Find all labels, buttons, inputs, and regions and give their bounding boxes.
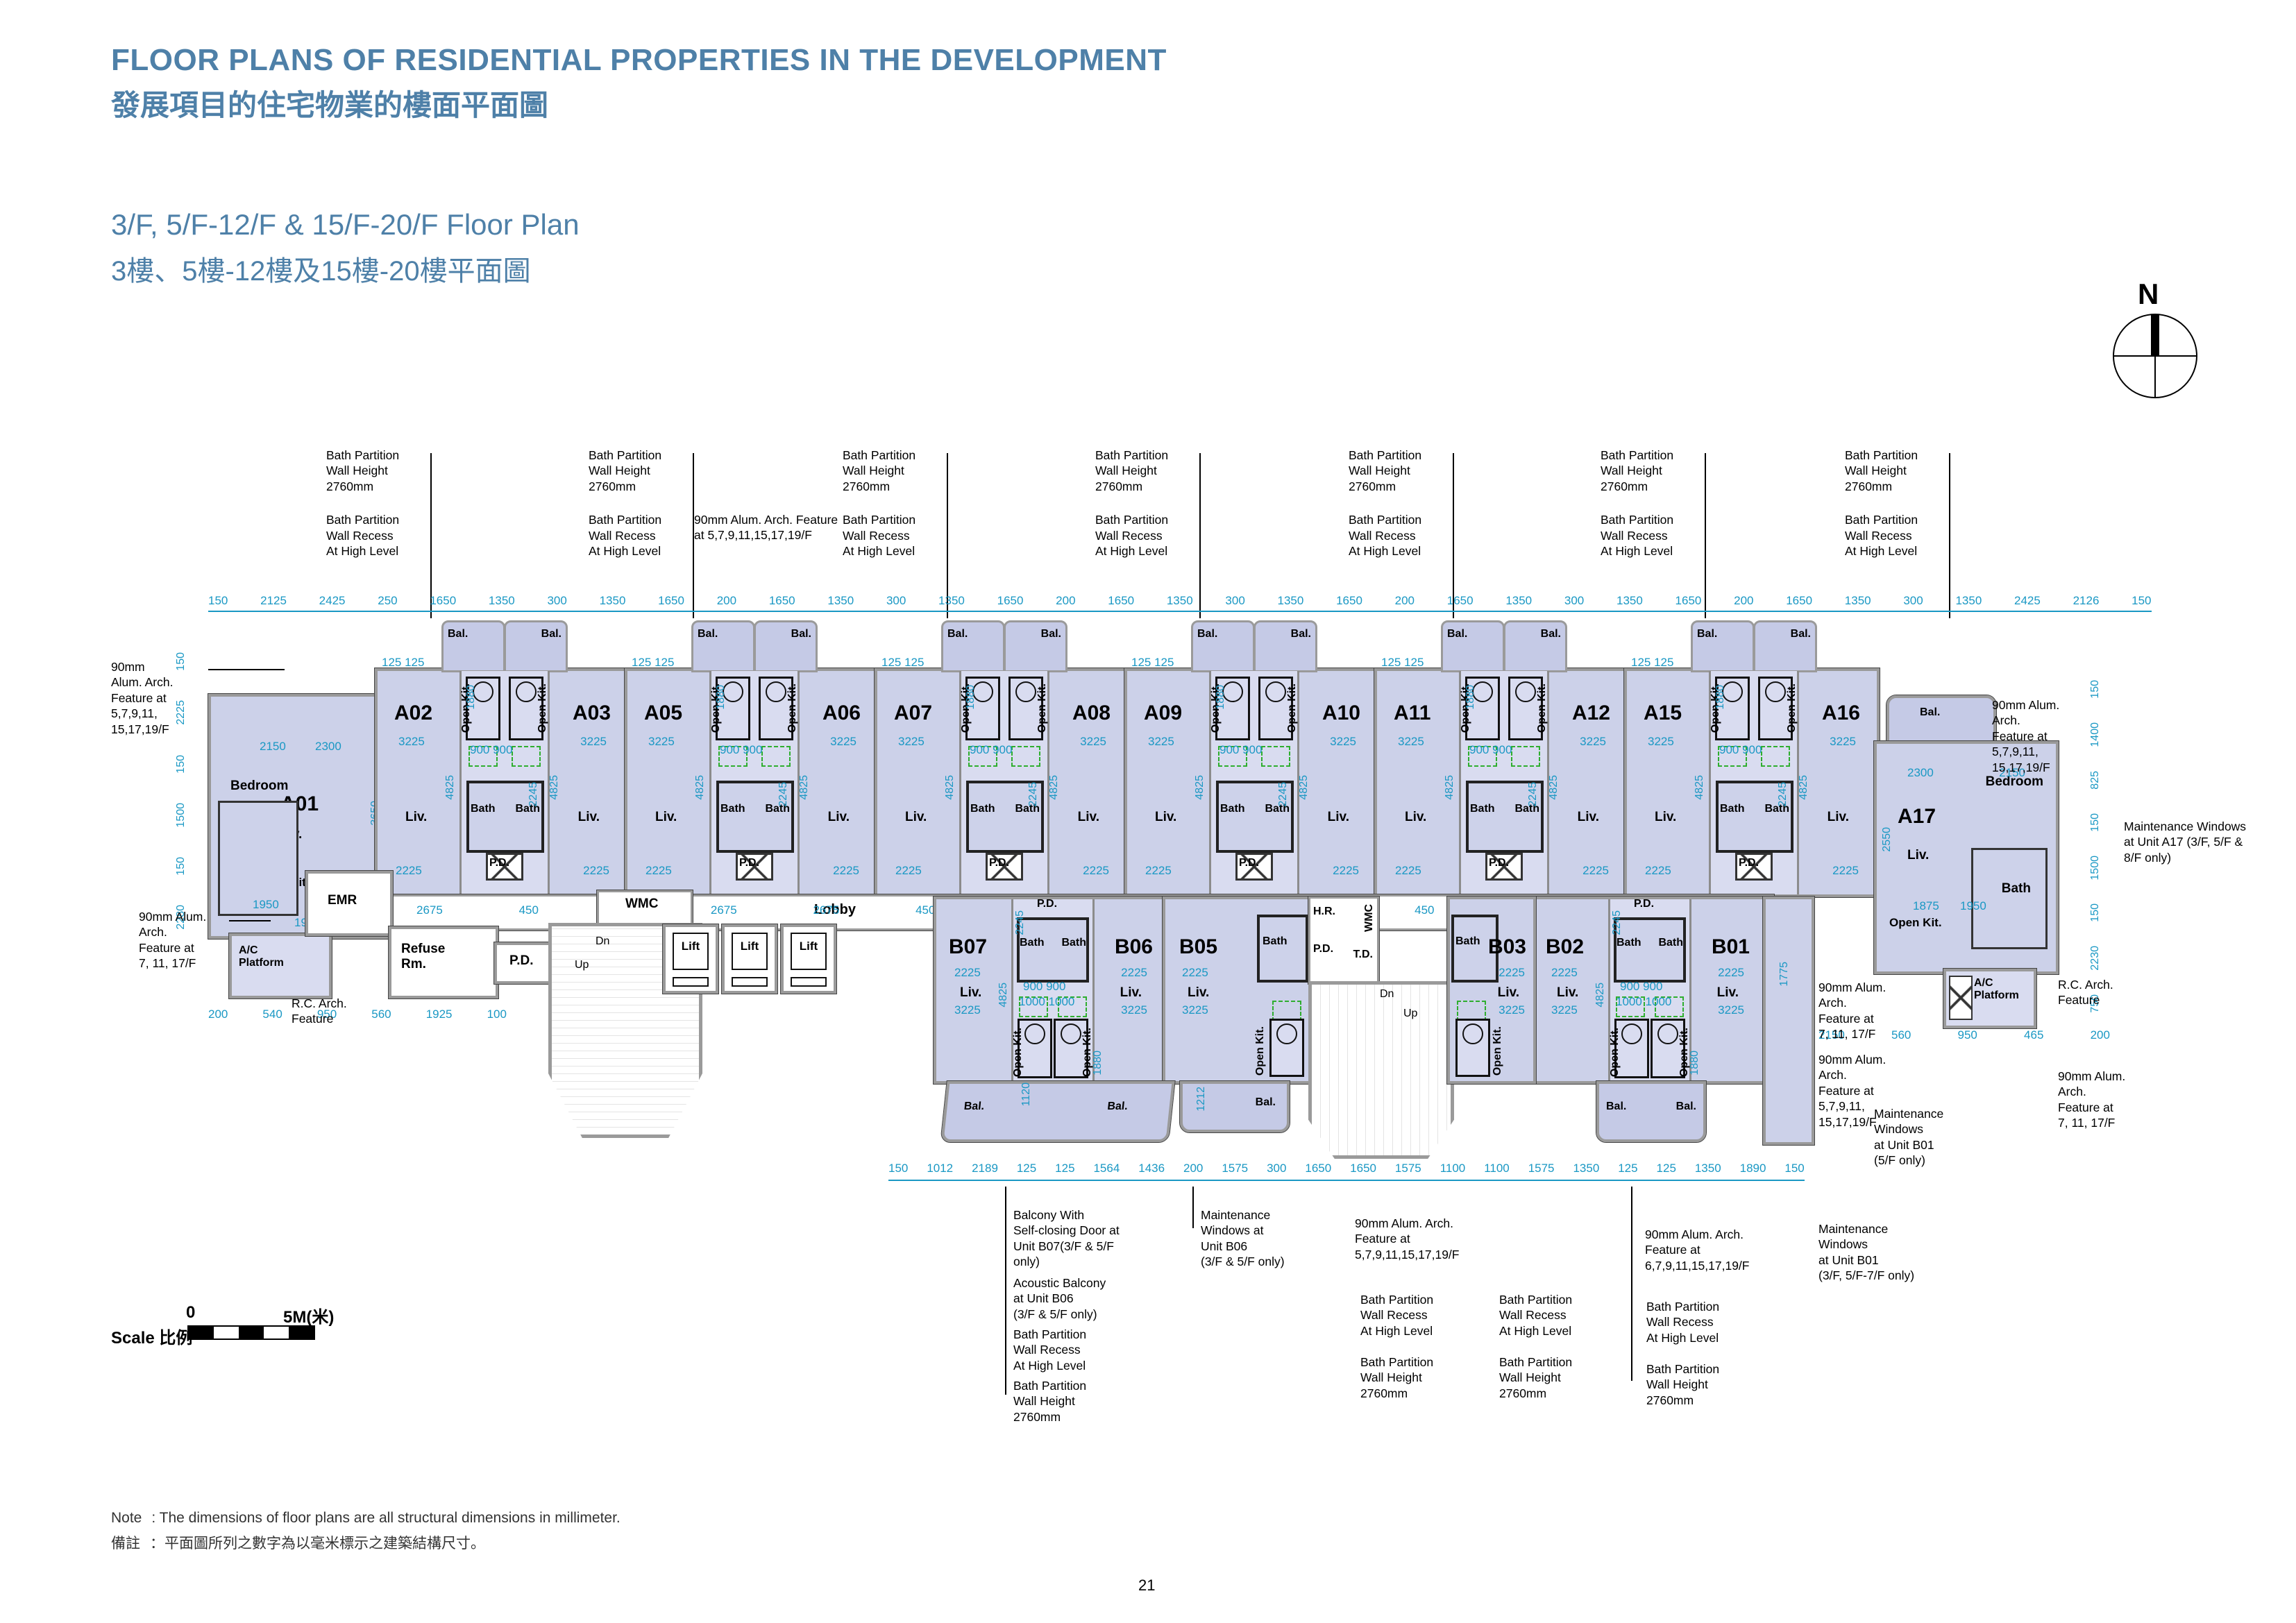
room-label-liv: Liv.	[1120, 985, 1142, 1001]
balcony: Bal.	[504, 620, 568, 672]
dimension-value: 150	[888, 1162, 908, 1175]
room-label-pd: P.D.	[739, 857, 759, 869]
room-label-ac-platform: A/C Platform	[239, 944, 284, 969]
dimension-value: 1875	[1913, 899, 1939, 913]
left-dimension-column: 150222515015001502280	[175, 652, 187, 930]
room-label-pd: P.D.	[509, 953, 534, 969]
dimension-value: 3225	[830, 735, 856, 749]
scale-start: 0	[186, 1303, 195, 1323]
room-label-liv: Liv.	[1827, 810, 1849, 825]
room-label-pd: P.D.	[1037, 898, 1057, 910]
ac-unit-icon	[1949, 976, 1973, 1020]
callout-bath-height: Bath Partition Wall Height 2760mm	[1601, 448, 1739, 494]
callout-bath-recess: Bath Partition Wall Recess At High Level	[1349, 512, 1487, 559]
dimension-value: 200	[717, 594, 736, 608]
stove-icon	[1462, 1023, 1483, 1044]
room-label-liv: Liv.	[828, 810, 850, 825]
room-label-bal: Bal.	[963, 1101, 985, 1113]
callout-maint-a17: Maintenance Windows at Unit A17 (3/F, 5/…	[2124, 819, 2290, 865]
dimension-value: 2245	[1277, 782, 1290, 807]
room-label-open-kit: Open Kit.	[786, 683, 799, 733]
dimension-value: 1400	[2089, 722, 2102, 747]
dimension-value: 150	[208, 594, 228, 608]
dimension-value: 1350	[938, 594, 965, 608]
unit-label: A12	[1572, 702, 1610, 725]
room-label-bath: Bath	[2002, 881, 2031, 897]
top-callout-column: Bath Partition Wall Height 2760mm Bath P…	[1601, 448, 1739, 559]
dimension-value: 300	[1564, 594, 1584, 608]
room-label-bal: Bal.	[947, 628, 968, 640]
dimension-value: 900 900	[970, 743, 1012, 757]
dimension-value: 3225	[1648, 735, 1674, 749]
callout-left-alum-5: 90mm Alum. Arch. Feature at 5,7,9,11, 15…	[111, 659, 173, 737]
dimension-value: 1880	[1464, 685, 1477, 710]
room-label-pd: P.D.	[1313, 943, 1333, 955]
room-label-pd: P.D.	[489, 857, 509, 869]
dimension-value: 200	[1734, 594, 1753, 608]
balcony: Bal.	[1004, 620, 1067, 672]
dimension-value: 1650	[1675, 594, 1702, 608]
dimension-value: 125 125	[1131, 656, 1174, 670]
dimension-value: 2425	[2014, 594, 2041, 608]
dimension-value: 1564	[1093, 1162, 1120, 1175]
dimension-value: 4825	[1594, 983, 1607, 1008]
b05-bath-walls: Bath	[1257, 915, 1308, 983]
room-label-liv: Liv.	[1188, 985, 1209, 1001]
scale-bar-segments	[187, 1325, 315, 1340]
emr-room: EMR	[305, 871, 393, 936]
top-callout-column: Bath Partition Wall Height 2760mm Bath P…	[1845, 448, 1984, 559]
room-label-liv: Liv.	[578, 810, 600, 825]
dimension-value: 1575	[1528, 1162, 1555, 1175]
room-label-refuse: Refuse Rm.	[401, 942, 445, 972]
unit-pair: Bal. Bal. Open Kit. Open Kit. 900 900 Ba…	[1624, 668, 1880, 897]
callout-bath-height: Bath Partition Wall Height 2760mm	[1360, 1354, 1485, 1401]
services-column: H.R. WMC P.D. T.D.	[1308, 897, 1379, 984]
unit-label: A10	[1322, 702, 1360, 725]
unit-a17-ac-platform: A/C Platform	[1943, 969, 2036, 1028]
room-label-pd: P.D.	[1739, 857, 1759, 869]
dimension-value: 150	[2089, 813, 2102, 832]
leader-line	[229, 920, 271, 921]
dimension-value: 4825	[1694, 775, 1706, 800]
north-label: N	[2138, 278, 2159, 311]
dimension-value: 2225	[1499, 966, 1525, 980]
dimension-value: 900 900	[1219, 743, 1262, 757]
note-en-label: Note	[111, 1510, 142, 1527]
dimension-value: 2225	[583, 864, 609, 878]
room-label-wmc: WMC	[1363, 904, 1376, 932]
bottom-dimension-line	[888, 1180, 1805, 1181]
unit-a01-ac-platform: A/C Platform	[229, 933, 332, 999]
room-label-open-kit: Open Kit.	[1786, 683, 1798, 733]
dimension-value: 450	[519, 903, 539, 917]
room-label-bath: Bath	[1263, 935, 1288, 948]
room-label-bath: Bath	[1617, 937, 1641, 949]
unit-label: A05	[644, 702, 682, 725]
room-label-ac-platform: A/C Platform	[1974, 977, 2019, 1002]
stove-icon	[1015, 681, 1036, 702]
dimension-value: 1500	[2089, 856, 2102, 881]
unit-label: A02	[394, 702, 432, 725]
dimension-value: 125	[1017, 1162, 1036, 1175]
stove-icon	[516, 681, 537, 702]
dimension-value: 200	[1056, 594, 1075, 608]
dimension-value: 1880	[715, 685, 727, 710]
balcony: Bal.	[754, 620, 818, 672]
unit-label-a17: A17	[1898, 805, 1936, 829]
balcony-b02-b01: Bal. Bal.	[1596, 1081, 1706, 1142]
callout-right-alum-5: 90mm Alum. Arch. Feature at 5,7,9,11, 15…	[1992, 697, 2059, 775]
dimension-value: 3225	[954, 1003, 981, 1017]
dimension-value: 2225	[1083, 864, 1109, 878]
dimension-value: 900 900	[1023, 980, 1065, 994]
dimension-value: 125	[1618, 1162, 1637, 1175]
dimension-value: 4825	[1194, 775, 1206, 800]
room-label-wmc: WMC	[625, 897, 658, 912]
callout-bath-height: Bath Partition Wall Height 2760mm	[1646, 1361, 1771, 1408]
kitchen-zone-dashed	[512, 746, 541, 767]
callout-alum-bottom-6: 90mm Alum. Arch. Feature at 6,7,9,11,15,…	[1645, 1227, 1798, 1273]
callout-right-alum-7: 90mm Alum. Arch. Feature at 7, 11, 17/F	[2058, 1069, 2125, 1131]
dimension-value: 2245	[1611, 910, 1623, 935]
dimension-value: 3225	[898, 735, 925, 749]
dimension-value: 200	[2091, 1028, 2110, 1042]
room-label-open-kit: Open Kit.	[1492, 1026, 1504, 1076]
dimension-value: 150	[1784, 1162, 1804, 1175]
dimension-value: 1650	[1350, 1162, 1376, 1175]
dimension-value: 125 125	[1381, 656, 1424, 670]
dimension-value: 3225	[580, 735, 607, 749]
callout-bath-recess: Bath Partition Wall Recess At High Level	[326, 512, 465, 559]
callout-maint-b01-37: Maintenance Windows at Unit B01 (3/F, 5/…	[1818, 1221, 1914, 1284]
dimension-value: 1575	[1395, 1162, 1421, 1175]
room-label-bal: Bal.	[1041, 628, 1061, 640]
stove-icon	[1515, 681, 1536, 702]
dimension-value: 1650	[1447, 594, 1474, 608]
dimension-value: 950	[1958, 1028, 1977, 1042]
dimension-value: 900 900	[1469, 743, 1512, 757]
note-zh-text: ：平面圖所列之數字為以毫米標示之建築結構尺寸。	[150, 1532, 485, 1553]
dimension-value: 2245	[1027, 782, 1040, 807]
dimension-value: 2675	[416, 903, 443, 917]
unit-label: A09	[1144, 702, 1182, 725]
callout-bath-height: Bath Partition Wall Height 2760mm	[1013, 1378, 1173, 1425]
dimension-value: 300	[886, 594, 906, 608]
leader-line	[208, 669, 285, 670]
room-label-bal: Bal.	[1697, 628, 1717, 640]
dimension-value: 200	[1395, 594, 1415, 608]
room-label-bath: Bath	[471, 803, 496, 815]
room-label-open-kit: Open Kit.	[537, 683, 549, 733]
top-callout-column: Bath Partition Wall Height 2760mm Bath P…	[843, 448, 981, 559]
dimension-value: 150	[175, 857, 187, 876]
dimension-value: 1650	[430, 594, 456, 608]
unit-label: A16	[1822, 702, 1860, 725]
dimension-value: 250	[378, 594, 397, 608]
callout-alum-mid-top: 90mm Alum. Arch. Feature at 5,7,9,11,15,…	[694, 512, 854, 543]
dimension-value: 2225	[1832, 864, 1859, 878]
top-dimension-row: 1502125242525016501350300135016502001650…	[208, 594, 2152, 608]
lift-door-icon	[673, 977, 709, 987]
room-label-open-kit: Open Kit.	[1286, 683, 1299, 733]
callout-bath-recess: Bath Partition Wall Recess At High Level	[1013, 1327, 1173, 1373]
room-label-open-kit: Open Kit.	[1012, 1028, 1024, 1077]
room-label-td: T.D.	[1353, 949, 1373, 961]
room-label-open-kit: Open Kit.	[1536, 683, 1548, 733]
dimension-value: 1650	[1305, 1162, 1331, 1175]
dimension-value: 3225	[1121, 1003, 1147, 1017]
page-subtitle-zh: 3樓、5樓-12樓及15樓-20樓平面圖	[111, 248, 531, 289]
callout-b01-alum-7: 90mm Alum. Arch. Feature at 7, 11, 17/F	[1818, 980, 1886, 1042]
kitchen-zone-dashed	[1761, 746, 1790, 767]
dimension-value: 1650	[1108, 594, 1134, 608]
callout-bath-recess: Bath Partition Wall Recess At High Level	[1601, 512, 1739, 559]
dimension-value: 1100	[1484, 1162, 1510, 1175]
room-label-bal: Bal.	[1920, 706, 1940, 719]
dimension-value: 3225	[1080, 735, 1106, 749]
dimension-value: 1950	[253, 898, 279, 912]
dimension-value: 3225	[1551, 1003, 1578, 1017]
room-label-pd: P.D.	[1489, 857, 1509, 869]
room-label-bal: Bal.	[1256, 1096, 1276, 1109]
room-label-liv: Liv.	[1155, 810, 1176, 825]
room-label-liv: Liv.	[1578, 810, 1599, 825]
callout-maint-b01-5: Maintenance Windows at Unit B01 (5/F onl…	[1874, 1106, 1943, 1169]
dimension-value: 2225	[1551, 966, 1578, 980]
room-label-emr: EMR	[328, 893, 357, 908]
balcony-b07-b06: Bal. Bal.	[940, 1081, 1174, 1142]
note-en: Note : The dimensions of floor plans are…	[111, 1510, 621, 1527]
dimension-value: 2245	[777, 782, 790, 807]
dimension-value: 2245	[1527, 782, 1539, 807]
dimension-value: 2225	[1182, 966, 1208, 980]
dimension-value: 1350	[1167, 594, 1193, 608]
dimension-value: 1350	[1955, 594, 1982, 608]
unit-label: B06	[1115, 935, 1153, 959]
dimension-value: 125 125	[382, 656, 424, 670]
callout-balcony-b07: Balcony With Self-closing Door at Unit B…	[1013, 1207, 1173, 1270]
page-number: 21	[1138, 1577, 1155, 1595]
note-zh: 備註 ：平面圖所列之數字為以毫米標示之建築結構尺寸。	[111, 1532, 485, 1553]
dimension-value: 1650	[997, 594, 1024, 608]
stair-label-up: Up	[575, 959, 589, 971]
callout-bath-height: Bath Partition Wall Height 2760mm	[1095, 448, 1234, 494]
dimension-value: 540	[262, 1008, 282, 1021]
unit-label: A07	[894, 702, 932, 725]
dimension-value: 1350	[1505, 594, 1532, 608]
balcony: Bal.	[691, 620, 755, 672]
north-arrow: N	[2110, 283, 2200, 422]
room-label-bal: Bal.	[698, 628, 718, 640]
dimension-value: 2225	[645, 864, 672, 878]
balcony: Bal.	[1441, 620, 1505, 672]
room-label-liv: Liv.	[1498, 985, 1519, 1001]
dimension-value: 1925	[426, 1008, 453, 1021]
callout-rc-feature-right: R.C. Arch. Feature	[2058, 977, 2113, 1008]
callout-rc-feature-left: R.C. Arch. Feature	[292, 996, 347, 1027]
balcony: Bal.	[1753, 620, 1817, 672]
dimension-value: 4825	[444, 775, 457, 800]
dimension-value: 560	[1891, 1028, 1911, 1042]
dimension-value: 150	[2089, 680, 2102, 699]
callout-maint-b06: Maintenance Windows at Unit B06 (3/F & 5…	[1201, 1207, 1319, 1270]
lift-shaft: Lift	[722, 924, 777, 994]
dimension-value: 1880	[1714, 685, 1727, 710]
page-title-zh: 發展項目的住宅物業的樓面平面圖	[111, 82, 548, 124]
dimension-value: 4825	[1798, 775, 1810, 800]
callout-bath-height: Bath Partition Wall Height 2760mm	[843, 448, 981, 494]
dimension-value: 825	[2089, 771, 2102, 790]
room-label-bal: Bal.	[1606, 1101, 1626, 1113]
room-label-hr: H.R.	[1313, 906, 1335, 918]
stove-icon	[1061, 1023, 1081, 1044]
dimension-value: 3225	[1580, 735, 1606, 749]
callout-bath-height: Bath Partition Wall Height 2760mm	[1349, 448, 1487, 494]
bottom-dimension-row: 1501012218912512515641436200157530016501…	[888, 1162, 1805, 1175]
room-label-bal: Bal.	[1106, 1101, 1128, 1113]
dimension-value: 3225	[1398, 735, 1424, 749]
dimension-value: 1890	[1740, 1162, 1766, 1175]
stair-label-dn: Dn	[1380, 988, 1394, 1001]
dimension-value: 1880	[1215, 685, 1227, 710]
stove-icon	[1276, 1023, 1297, 1044]
balcony: Bal.	[1253, 620, 1317, 672]
room-label-bal: Bal.	[1541, 628, 1561, 640]
dimension-value: 125 125	[881, 656, 924, 670]
dimension-value: 200	[208, 1008, 228, 1021]
room-label-bath: Bath	[720, 803, 745, 815]
unit-b05: B05 2225 Liv. 3225 Bath Open Kit.	[1163, 897, 1314, 1084]
dimension-value: 125	[1055, 1162, 1074, 1175]
callout-bath-recess: Bath Partition Wall Recess At High Level	[843, 512, 981, 559]
dimension-value: 3225	[398, 735, 425, 749]
dimension-value: 100	[487, 1008, 507, 1021]
dimension-value: 150	[2089, 903, 2102, 922]
dimension-value: 3225	[1499, 1003, 1525, 1017]
lift-shaft: Lift	[663, 924, 718, 994]
callout-acoustic-b06: Acoustic Balcony at Unit B06 (3/F & 5/F …	[1013, 1275, 1173, 1322]
dimension-value: 125 125	[632, 656, 674, 670]
dimension-value: 3225	[648, 735, 675, 749]
dimension-value: 2225	[175, 700, 187, 725]
dimension-value: 1650	[1336, 594, 1362, 608]
room-label-bal: Bal.	[541, 628, 562, 640]
room-label-open-kit: Open Kit.	[1889, 916, 1942, 930]
stove-icon	[1621, 1023, 1642, 1044]
page-title-en: FLOOR PLANS OF RESIDENTIAL PROPERTIES IN…	[111, 43, 1167, 78]
dimension-value: 2126	[2073, 594, 2100, 608]
room-label-liv: Liv.	[960, 985, 981, 1001]
dimension-value: 200	[1183, 1162, 1203, 1175]
unit-label: B01	[1712, 935, 1750, 959]
room-label-bath: Bath	[1658, 937, 1683, 949]
dimension-value: 1350	[1617, 594, 1643, 608]
lift-door-icon	[791, 977, 827, 987]
room-label-bath: Bath	[1470, 803, 1495, 815]
left-bottom-dimension-row: 2005409505601925100	[208, 1008, 507, 1021]
room-label-bath: Bath	[1220, 803, 1245, 815]
dimension-value: 4825	[944, 775, 956, 800]
room-label-bath: Bath	[1720, 803, 1745, 815]
dimension-value: 1650	[769, 594, 795, 608]
dimension-value: 2245	[527, 782, 540, 807]
unit-label: A03	[573, 702, 611, 725]
dimension-value: 1950	[1960, 899, 1986, 913]
dimension-value: 2225	[1145, 864, 1172, 878]
dimension-value: 2245	[1777, 782, 1789, 807]
note-zh-label: 備註	[111, 1532, 140, 1553]
unit-pair: P.D. Bath Bath 900 900 1000 1000 Open Ki…	[1530, 897, 1765, 1084]
dimension-value: 900 900	[720, 743, 762, 757]
dimension-value: 1350	[1278, 594, 1304, 608]
unit-pair: Bal. Bal. Open Kit. Open Kit. 900 900 Ba…	[625, 668, 880, 897]
a17-bath-walls	[1971, 848, 2048, 949]
dimension-value: 2225	[1645, 864, 1671, 878]
dimension-value: 3225	[1182, 1003, 1208, 1017]
room-label-liv: Liv.	[655, 810, 677, 825]
right-dimension-column: 150140082515015001502230750	[2089, 680, 2102, 1013]
bath-pair: Bath Bath	[1614, 917, 1686, 983]
stair-label-dn: Dn	[596, 935, 609, 948]
unit-pair: Bal. Bal. Open Kit. Open Kit. 900 900 Ba…	[875, 668, 1130, 897]
callout-bath-recess: Bath Partition Wall Recess At High Level	[1646, 1299, 1771, 1345]
callout-bath-height: Bath Partition Wall Height 2760mm	[1499, 1354, 1624, 1401]
dimension-value: 1575	[1222, 1162, 1248, 1175]
balcony: Bal.	[941, 620, 1005, 672]
room-label-lift: Lift	[666, 940, 716, 953]
dimension-value: 150	[175, 652, 187, 671]
room-label-liv: Liv.	[1717, 985, 1739, 1001]
top-callout-column: Bath Partition Wall Height 2760mm Bath P…	[326, 448, 465, 559]
dimension-value: 300	[1903, 594, 1923, 608]
dimension-value: 150	[2132, 594, 2151, 608]
dimension-value: 2225	[1333, 864, 1359, 878]
bath-pair: Bath Bath	[1017, 917, 1089, 983]
room-label-bal: Bal.	[791, 628, 811, 640]
dimension-value: 2230	[2089, 946, 2102, 971]
room-label-bal: Bal.	[1197, 628, 1217, 640]
unit-b01-extension: 1775	[1763, 897, 1814, 1145]
unit-label: A11	[1394, 702, 1430, 725]
wmc-room-west: WMC	[597, 890, 693, 925]
unit-b03: Bath B03 2225 Liv. 3225 Open Kit.	[1447, 897, 1536, 1084]
dimension-value: 1650	[658, 594, 684, 608]
room-label-liv: Liv.	[1655, 810, 1676, 825]
kitchen-zone-dashed	[1011, 746, 1040, 767]
dimension-value: 4825	[997, 983, 1010, 1008]
callout-alum-bottom-5: 90mm Alum. Arch. Feature at 5,7,9,11,15,…	[1355, 1216, 1508, 1262]
page-subtitle-en: 3/F, 5/F-12/F & 15/F-20/F Floor Plan	[111, 208, 580, 241]
dimension-value: 1350	[1573, 1162, 1599, 1175]
scale-label: Scale 比例	[111, 1324, 192, 1348]
top-callout-column: Bath Partition Wall Height 2760mm Bath P…	[1349, 448, 1487, 559]
north-compass-icon	[2113, 314, 2197, 398]
dimension-value: 2550	[1881, 827, 1893, 852]
room-label-open-kit: Open Kit.	[1609, 1028, 1621, 1077]
dimension-value: 2675	[711, 903, 737, 917]
unit-label-b05: B05	[1179, 935, 1217, 959]
unit-label: A06	[822, 702, 861, 725]
dimension-value: 2225	[1582, 864, 1609, 878]
dimension-value: 1000 1000	[1019, 995, 1074, 1009]
callout-bath-height: Bath Partition Wall Height 2760mm	[589, 448, 727, 494]
dimension-value: 2225	[833, 864, 859, 878]
dimension-value: 4825	[1444, 775, 1456, 800]
lift-shaft: Lift	[781, 924, 836, 994]
unit-label: B07	[949, 935, 987, 959]
room-label-bedroom: Bedroom	[230, 779, 288, 794]
